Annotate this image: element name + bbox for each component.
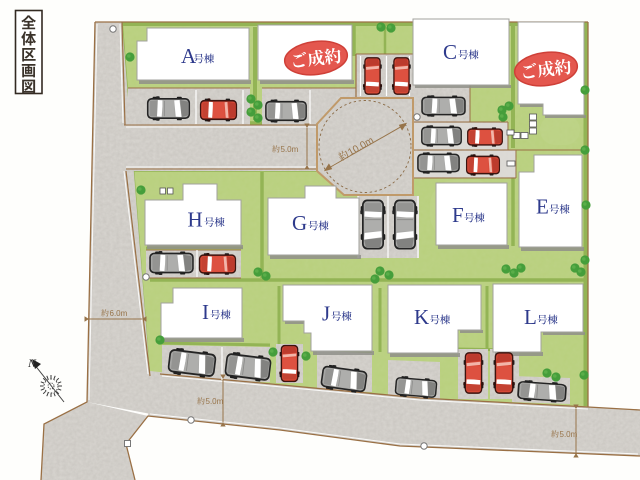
svg-text:H: H (188, 208, 203, 232)
svg-text:5.0m: 5.0m (281, 145, 299, 154)
svg-text:F: F (452, 203, 464, 227)
svg-text:J: J (322, 302, 330, 326)
svg-text:5.0m: 5.0m (560, 430, 578, 439)
svg-text:C: C (443, 40, 457, 64)
svg-text:E: E (536, 195, 549, 219)
svg-text:5.0m: 5.0m (206, 397, 224, 406)
svg-text:G: G (292, 211, 307, 235)
svg-text:A: A (181, 44, 197, 68)
svg-text:N: N (27, 356, 37, 370)
svg-text:L: L (524, 305, 537, 329)
svg-text:I: I (202, 300, 209, 324)
svg-text:6.0m: 6.0m (110, 309, 128, 318)
svg-text:K: K (414, 305, 429, 329)
